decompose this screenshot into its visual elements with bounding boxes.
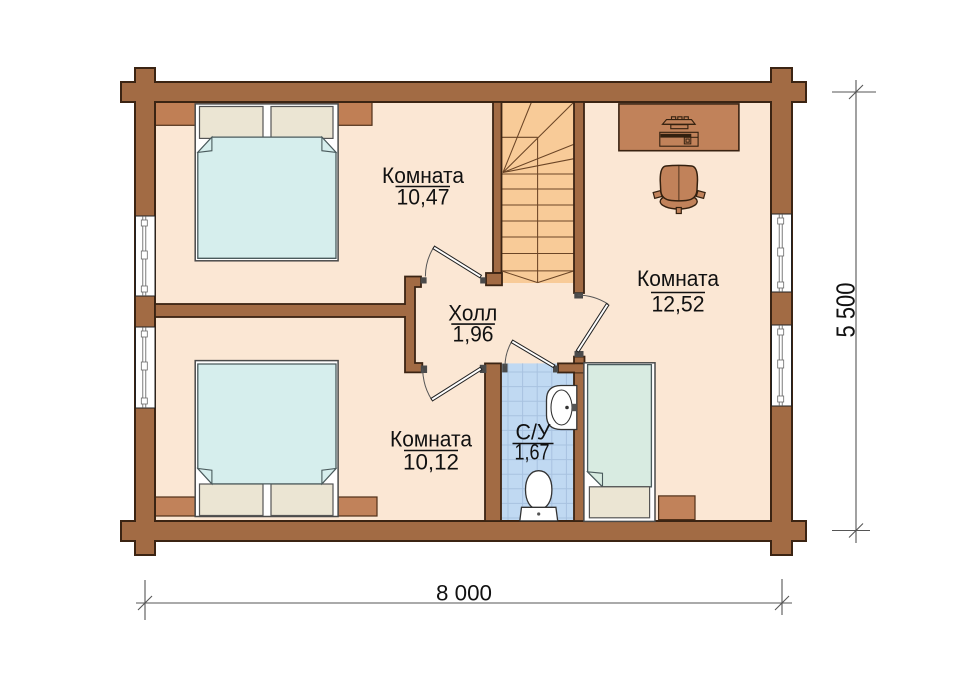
svg-text:10,12: 10,12 xyxy=(403,450,459,475)
svg-text:Комната: Комната xyxy=(390,427,473,452)
svg-text:8 000: 8 000 xyxy=(436,581,492,606)
svg-text:10,47: 10,47 xyxy=(397,185,450,210)
svg-text:1,96: 1,96 xyxy=(453,322,494,347)
svg-text:12,52: 12,52 xyxy=(652,292,705,317)
svg-text:Комната: Комната xyxy=(637,266,720,291)
